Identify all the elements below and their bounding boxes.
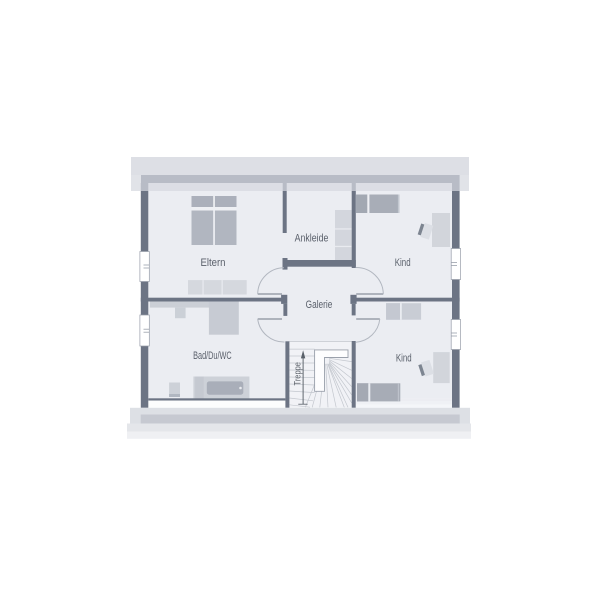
svg-text:Kind: Kind [396, 353, 412, 365]
svg-text:Galerie: Galerie [306, 299, 333, 311]
svg-text:Kind: Kind [395, 257, 411, 269]
svg-text:Bad/Du/WC: Bad/Du/WC [193, 350, 232, 362]
svg-text:Treppe: Treppe [293, 362, 304, 385]
svg-text:Ankleide: Ankleide [295, 232, 329, 244]
svg-text:Eltern: Eltern [201, 257, 226, 269]
